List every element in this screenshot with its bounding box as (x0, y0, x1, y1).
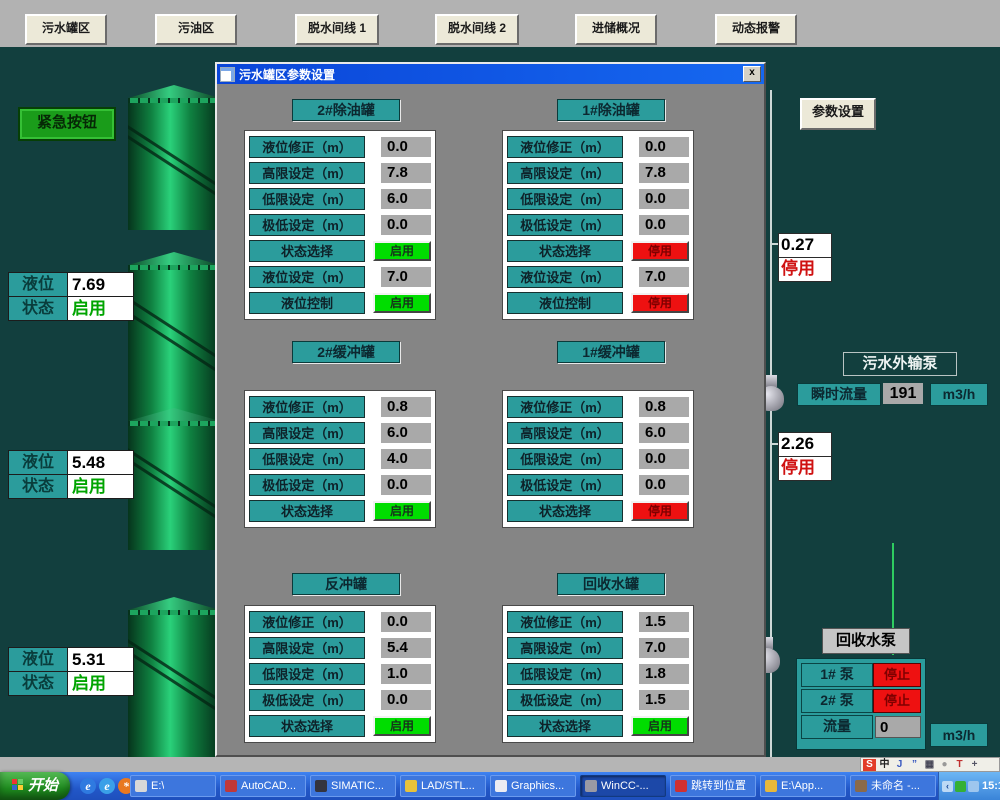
parameter-value-field[interactable]: 7.0 (639, 267, 689, 287)
parameter-row: 液位控制启用 (249, 291, 431, 315)
parameter-label: 极低设定（m） (249, 214, 365, 236)
parameter-label: 液位控制 (249, 292, 365, 314)
status-toggle-button[interactable]: 启用 (373, 716, 431, 736)
close-icon[interactable]: x (743, 66, 761, 82)
status-value: 启用 (68, 672, 133, 695)
panel-title-2: 2#缓冲罐 (292, 341, 400, 363)
parameter-label: 低限设定（m） (249, 188, 365, 210)
parameter-value-field[interactable]: 6.0 (381, 189, 431, 209)
parameter-row: 高限设定（m）7.0 (507, 636, 689, 660)
recycle-pump-row: 2# 泵停止 (801, 688, 921, 714)
parameter-value-field[interactable]: 7.0 (639, 638, 689, 658)
parameter-value-field[interactable]: 4.0 (381, 449, 431, 469)
parameter-row: 低限设定（m）0.0 (507, 187, 689, 211)
scada-screen: { "colors":{"bg_teal":"#123f3e","accent_… (0, 0, 1000, 800)
recycle-flow-value: 0 (875, 716, 921, 738)
parameter-row: 液位修正（m）1.5 (507, 610, 689, 634)
parameter-value-field[interactable]: 7.8 (639, 163, 689, 183)
taskbar-item-label: E:\ (151, 776, 164, 796)
app-icon (135, 780, 147, 792)
parameter-row: 液位修正（m）0.8 (249, 395, 431, 419)
app-icon (585, 780, 597, 792)
parameter-label: 极低设定（m） (507, 474, 623, 496)
parameter-value-field[interactable]: 0.0 (639, 449, 689, 469)
nav-button-1[interactable]: 污油区 (155, 14, 237, 45)
parameter-value-field[interactable]: 7.0 (381, 267, 431, 287)
emergency-button[interactable]: 紧急按钮 (18, 107, 116, 141)
sogou-icon[interactable]: S (863, 759, 876, 771)
parameter-label: 低限设定（m） (249, 448, 365, 470)
readout-value: 2.26 (778, 432, 832, 457)
level-value: 5.48 (68, 451, 133, 474)
parameter-label: 极低设定（m） (249, 474, 365, 496)
windows-logo-icon (12, 779, 25, 791)
parameter-row: 状态选择启用 (507, 714, 689, 738)
dialog-icon (220, 67, 235, 82)
taskbar-item-label: WinCC-... (601, 776, 649, 796)
level-row: 液位5.31 (9, 648, 133, 671)
tank-body (128, 103, 220, 230)
taskbar-item-5[interactable]: WinCC-... (580, 775, 666, 797)
readout-status[interactable]: 停用 (778, 457, 832, 481)
start-button[interactable]: 开始 (0, 772, 70, 800)
tank-roof (128, 408, 220, 421)
storage-tank-1 (128, 85, 220, 230)
parameter-row: 状态选择启用 (249, 499, 431, 523)
parameter-label: 液位修正（m） (507, 611, 623, 633)
parameter-value-field[interactable]: 0.0 (639, 475, 689, 495)
status-row: 状态启用 (9, 296, 133, 320)
parameter-value-field[interactable]: 0.8 (381, 397, 431, 417)
clock[interactable]: 15:10 (982, 780, 1000, 792)
parameter-label: 液位修正（m） (507, 136, 623, 158)
panel-title-3: 1#缓冲罐 (557, 341, 665, 363)
dialog-body: 2#除油罐液位修正（m）0.0高限设定（m）7.8低限设定（m）6.0极低设定（… (217, 84, 764, 757)
panel-title-4: 反冲罐 (292, 573, 400, 595)
parameter-value-field[interactable]: 6.0 (381, 423, 431, 443)
parameter-row: 液位设定（m）7.0 (507, 265, 689, 289)
status-toggle-button[interactable]: 停用 (631, 241, 689, 261)
parameter-settings-button[interactable]: 参数设置 (800, 98, 876, 130)
taskbar-item-label: LAD/STL... (421, 776, 475, 796)
recycle-pump-panel: 1# 泵停止2# 泵停止流量0 (796, 658, 926, 750)
tools-icon[interactable]: + (968, 759, 981, 771)
nav-button-4[interactable]: 进储概况 (575, 14, 657, 45)
readout-status[interactable]: 停用 (778, 258, 832, 282)
status-toggle-button[interactable]: 启用 (373, 501, 431, 521)
parameter-value-field[interactable]: 0.0 (381, 475, 431, 495)
status-toggle-button[interactable]: 启用 (631, 716, 689, 736)
panel-title-0: 2#除油罐 (292, 99, 400, 121)
parameter-label: 液位设定（m） (507, 266, 623, 288)
panel-box-2: 液位修正（m）0.8高限设定（m）6.0低限设定（m）4.0极低设定（m）0.0… (244, 390, 436, 528)
recycle-pump-label: 流量 (801, 715, 873, 739)
recycle-pump-label: 2# 泵 (801, 689, 873, 713)
status-label: 状态 (9, 475, 68, 498)
status-label: 状态 (9, 672, 68, 695)
dialog-titlebar[interactable]: 污水罐区参数设置 x (217, 64, 764, 84)
taskbar-item-8[interactable]: 未命名 -... (850, 775, 936, 797)
parameter-label: 低限设定（m） (507, 663, 623, 685)
instant-flow-label: 瞬时流量 (797, 383, 881, 406)
parameter-label: 状态选择 (507, 715, 623, 737)
tank-roof (128, 252, 220, 265)
status-toggle-button[interactable]: 启用 (373, 241, 431, 261)
parameter-value-field[interactable]: 7.8 (381, 163, 431, 183)
parameter-label: 高限设定（m） (507, 637, 623, 659)
tank-info-3: 液位5.31状态启用 (8, 647, 134, 696)
parameter-value-field[interactable]: 0.0 (639, 137, 689, 157)
instant-flow-unit: m3/h (930, 383, 988, 406)
parameter-label: 极低设定（m） (507, 689, 623, 711)
start-label: 开始 (28, 777, 58, 794)
parameter-label: 状态选择 (507, 240, 623, 262)
desktop-strip (0, 757, 1000, 772)
app-icon (765, 780, 777, 792)
status-value: 启用 (68, 297, 133, 320)
parameter-label: 液位修正（m） (507, 396, 623, 418)
taskbar-item-0[interactable]: E:\ (130, 775, 216, 797)
app-icon (405, 780, 417, 792)
taskbar-item-label: AutoCAD... (241, 776, 296, 796)
parameter-row: 高限设定（m）7.8 (507, 161, 689, 185)
nav-button-2[interactable]: 脱水间线 1 (295, 14, 379, 45)
parameter-label: 高限设定（m） (249, 162, 365, 184)
parameter-row: 液位修正（m）0.0 (507, 135, 689, 159)
taskbar-item-3[interactable]: LAD/STL... (400, 775, 486, 797)
recycle-pump-title: 回收水泵 (822, 628, 910, 654)
level-label: 液位 (9, 451, 68, 474)
parameter-row: 低限设定（m）1.8 (507, 662, 689, 686)
parameter-value-field[interactable]: 6.0 (639, 423, 689, 443)
parameter-label: 液位修正（m） (249, 396, 365, 418)
parameter-label: 液位修正（m） (249, 611, 365, 633)
taskbar-item-7[interactable]: E:\App... (760, 775, 846, 797)
panel-box-5: 液位修正（m）1.5高限设定（m）7.0低限设定（m）1.8极低设定（m）1.5… (502, 605, 694, 743)
parameter-label: 液位设定（m） (249, 266, 365, 288)
status-toggle-button[interactable]: 停用 (631, 293, 689, 313)
nav-button-5[interactable]: 动态报警 (715, 14, 797, 45)
parameter-row: 液位设定（m）7.0 (249, 265, 431, 289)
taskbar-item-4[interactable]: Graphics... (490, 775, 576, 797)
tank-body (128, 615, 220, 757)
recycle-pump-row: 流量0 (801, 714, 921, 740)
keyboard-icon[interactable]: ▦ (923, 759, 936, 771)
pump-status-button[interactable]: 停止 (873, 689, 921, 713)
fullhalf-icon[interactable]: J (893, 759, 906, 771)
level-row: 液位7.69 (9, 273, 133, 296)
parameter-value-field[interactable]: 5.4 (381, 638, 431, 658)
parameter-label: 极低设定（m） (249, 689, 365, 711)
app-icon (855, 780, 867, 792)
taskbar-item-label: E:\App... (781, 776, 823, 796)
parameter-label: 状态选择 (249, 240, 365, 262)
parameter-value-field[interactable]: 1.0 (381, 664, 431, 684)
panel-box-0: 液位修正（m）0.0高限设定（m）7.8低限设定（m）6.0极低设定（m）0.0… (244, 130, 436, 320)
level-row: 液位5.48 (9, 451, 133, 474)
parameter-row: 状态选择停用 (507, 499, 689, 523)
parameter-value-field[interactable]: 1.8 (639, 664, 689, 684)
parameter-row: 低限设定（m）4.0 (249, 447, 431, 471)
pump-status-button[interactable]: 停止 (873, 663, 921, 687)
parameter-row: 极低设定（m）0.0 (249, 688, 431, 712)
parameter-value-field[interactable]: 0.0 (381, 612, 431, 632)
taskbar-item-label: 未命名 -... (871, 776, 920, 796)
parameter-label: 高限设定（m） (507, 422, 623, 444)
parameter-label: 状态选择 (507, 500, 623, 522)
parameter-row: 状态选择停用 (507, 239, 689, 263)
readout-value: 0.27 (778, 233, 832, 258)
hide-icons-chevron[interactable]: ‹ (942, 781, 953, 792)
parameter-label: 低限设定（m） (507, 188, 623, 210)
dialog-title: 污水罐区参数设置 (239, 66, 335, 83)
app-icon (225, 780, 237, 792)
ime-toolbar: S中J”▦●T+ (860, 757, 1000, 772)
tank-body (128, 426, 220, 550)
parameter-row: 液位修正（m）0.0 (249, 610, 431, 634)
storage-tank-4 (128, 597, 220, 757)
panel-title-1: 1#除油罐 (557, 99, 665, 121)
taskbar-item-2[interactable]: SIMATIC... (310, 775, 396, 797)
parameter-row: 高限设定（m）6.0 (507, 421, 689, 445)
level-label: 液位 (9, 273, 68, 296)
parameter-label: 高限设定（m） (249, 637, 365, 659)
status-value: 启用 (68, 475, 133, 498)
parameter-row: 极低设定（m）0.0 (507, 473, 689, 497)
parameter-value-field[interactable]: 0.8 (639, 397, 689, 417)
antivirus-shield-icon[interactable] (955, 781, 966, 792)
parameter-row: 极低设定（m）0.0 (249, 213, 431, 237)
parameter-row: 状态选择启用 (249, 239, 431, 263)
taskbar-item-label: 跳转到位置 (691, 776, 746, 796)
tank-roof (128, 597, 220, 610)
taskbar-item-6[interactable]: 跳转到位置 (670, 775, 756, 797)
top-nav: 污水罐区污油区脱水间线 1脱水间线 2进储概况动态报警 (0, 0, 1000, 48)
status-label: 状态 (9, 297, 68, 320)
parameter-label: 液位修正（m） (249, 136, 365, 158)
tank-info-1: 液位7.69状态启用 (8, 272, 134, 321)
pressure-readout-mid: 2.26 停用 (778, 432, 832, 481)
recycle-pump-row: 1# 泵停止 (801, 662, 921, 688)
level-label: 液位 (9, 648, 68, 671)
parameter-label: 高限设定（m） (249, 422, 365, 444)
tank-info-2: 液位5.48状态启用 (8, 450, 134, 499)
punctuation-icon[interactable]: ” (908, 759, 921, 771)
app-icon (675, 780, 687, 792)
app-icon (495, 780, 507, 792)
parameter-value-field[interactable]: 0.0 (381, 137, 431, 157)
parameter-row: 高限设定（m）7.8 (249, 161, 431, 185)
user-icon[interactable]: ● (938, 759, 951, 771)
taskbar-item-label: SIMATIC... (331, 776, 384, 796)
ie-icon[interactable]: e (80, 778, 96, 794)
status-toggle-button[interactable]: 启用 (373, 293, 431, 313)
parameter-row: 液位修正（m）0.0 (249, 135, 431, 159)
parameter-row: 高限设定（m）6.0 (249, 421, 431, 445)
tray-icons: ‹ (942, 781, 979, 792)
parameter-row: 低限设定（m）0.0 (507, 447, 689, 471)
status-toggle-button[interactable]: 停用 (631, 501, 689, 521)
parameter-dialog: 污水罐区参数设置 x 2#除油罐液位修正（m）0.0高限设定（m）7.8低限设定… (215, 62, 766, 757)
status-row: 状态启用 (9, 671, 133, 695)
parameter-value-field[interactable]: 0.0 (639, 215, 689, 235)
export-pump-title: 污水外输泵 (843, 352, 957, 376)
taskbar-item-1[interactable]: AutoCAD... (220, 775, 306, 797)
nav-button-3[interactable]: 脱水间线 2 (435, 14, 519, 45)
parameter-row: 液位控制停用 (507, 291, 689, 315)
panel-title-5: 回收水罐 (557, 573, 665, 595)
panel-box-3: 液位修正（m）0.8高限设定（m）6.0低限设定（m）0.0极低设定（m）0.0… (502, 390, 694, 528)
panel-box-4: 液位修正（m）0.0高限设定（m）5.4低限设定（m）1.0极低设定（m）0.0… (244, 605, 436, 743)
parameter-row: 低限设定（m）1.0 (249, 662, 431, 686)
parameter-row: 极低设定（m）1.5 (507, 688, 689, 712)
status-row: 状态启用 (9, 474, 133, 498)
system-tray: ‹ 15:10 (938, 772, 1000, 800)
nav-button-0[interactable]: 污水罐区 (25, 14, 107, 45)
parameter-row: 低限设定（m）6.0 (249, 187, 431, 211)
parameter-value-field[interactable]: 1.5 (639, 612, 689, 632)
parameter-label: 高限设定（m） (507, 162, 623, 184)
parameter-value-field[interactable]: 0.0 (381, 690, 431, 710)
parameter-label: 低限设定（m） (249, 663, 365, 685)
level-value: 7.69 (68, 273, 133, 296)
browser-icon[interactable]: e (99, 778, 115, 794)
parameter-label: 液位控制 (507, 292, 623, 314)
parameter-row: 高限设定（m）5.4 (249, 636, 431, 660)
parameter-row: 极低设定（m）0.0 (507, 213, 689, 237)
parameter-row: 状态选择启用 (249, 714, 431, 738)
panel-box-1: 液位修正（m）0.0高限设定（m）7.8低限设定（m）0.0极低设定（m）0.0… (502, 130, 694, 320)
parameter-label: 状态选择 (249, 715, 365, 737)
taskbar-item-label: Graphics... (511, 776, 564, 796)
pressure-readout-top: 0.27 停用 (778, 233, 832, 282)
instant-flow-value: 191 (883, 383, 923, 404)
tank-roof (128, 85, 220, 98)
level-value: 5.31 (68, 648, 133, 671)
parameter-label: 极低设定（m） (507, 214, 623, 236)
parameter-row: 液位修正（m）0.8 (507, 395, 689, 419)
parameter-label: 状态选择 (249, 500, 365, 522)
recycle-pump-label: 1# 泵 (801, 663, 873, 687)
recycle-flow-unit: m3/h (930, 723, 988, 747)
parameter-row: 极低设定（m）0.0 (249, 473, 431, 497)
parameter-value-field[interactable]: 0.0 (381, 215, 431, 235)
skin-icon[interactable]: T (953, 759, 966, 771)
app-icon (315, 780, 327, 792)
chinese-mode-icon[interactable]: 中 (878, 759, 891, 771)
parameter-value-field[interactable]: 0.0 (639, 189, 689, 209)
taskbar: 开始 ee* E:\AutoCAD...SIMATIC...LAD/STL...… (0, 772, 1000, 800)
storage-tank-3 (128, 408, 220, 550)
parameter-value-field[interactable]: 1.5 (639, 690, 689, 710)
parameter-label: 低限设定（m） (507, 448, 623, 470)
network-icon[interactable] (968, 781, 979, 792)
